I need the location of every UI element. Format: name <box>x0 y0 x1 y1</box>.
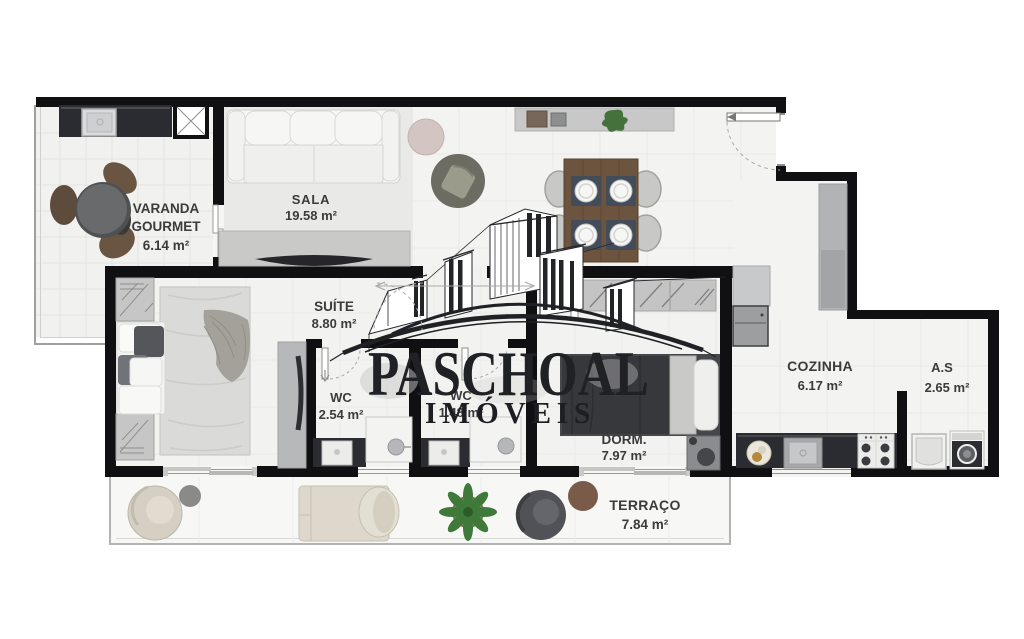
svg-text:8.80 m²: 8.80 m² <box>312 316 357 331</box>
svg-text:2.65 m²: 2.65 m² <box>925 380 970 395</box>
svg-text:COZINHA: COZINHA <box>787 358 853 374</box>
svg-text:2.54 m²: 2.54 m² <box>319 407 364 422</box>
svg-text:19.58 m²: 19.58 m² <box>285 208 338 223</box>
svg-text:TERRAÇO: TERRAÇO <box>609 497 680 513</box>
svg-text:VARANDA: VARANDA <box>133 201 200 216</box>
svg-text:WC: WC <box>330 390 352 405</box>
svg-text:IMÓVEIS: IMÓVEIS <box>425 395 596 430</box>
svg-text:SALA: SALA <box>292 192 331 207</box>
svg-text:GOURMET: GOURMET <box>132 219 202 234</box>
svg-text:7.84 m²: 7.84 m² <box>622 517 669 532</box>
svg-text:6.14 m²: 6.14 m² <box>143 238 190 253</box>
svg-text:SUÍTE: SUÍTE <box>314 299 354 314</box>
svg-text:DORM.: DORM. <box>602 432 647 447</box>
svg-text:A.S: A.S <box>931 360 953 375</box>
svg-text:7.97 m²: 7.97 m² <box>602 448 647 463</box>
svg-text:6.17 m²: 6.17 m² <box>798 378 843 393</box>
